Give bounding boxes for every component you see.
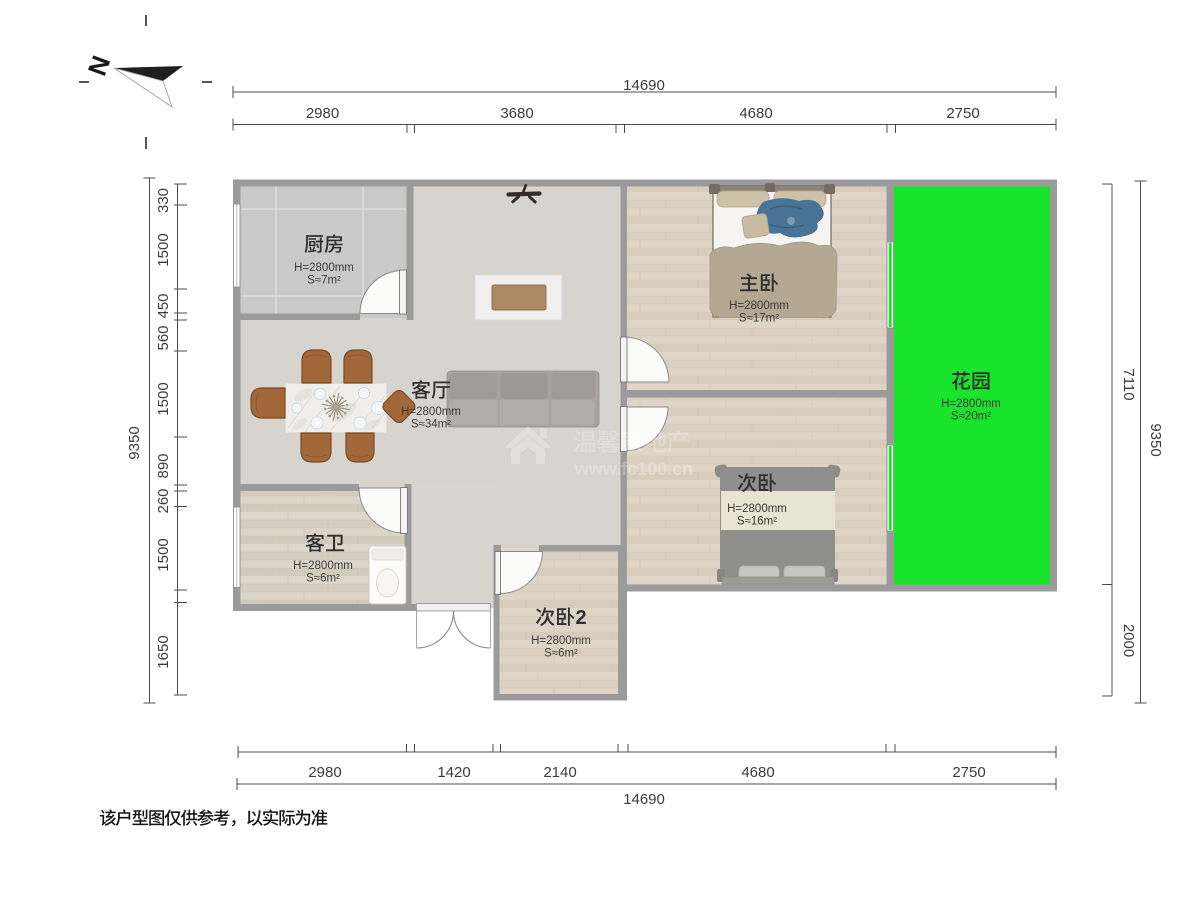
svg-text:2980: 2980 (308, 764, 341, 781)
svg-text:9350: 9350 (126, 426, 143, 459)
svg-text:2140: 2140 (543, 764, 576, 781)
svg-text:S≈7m²: S≈7m² (307, 275, 341, 287)
svg-text:1420: 1420 (437, 764, 470, 781)
svg-text:S≈6m²: S≈6m² (306, 573, 340, 585)
svg-text:S≈6m²: S≈6m² (544, 648, 578, 660)
svg-text:H=2800mm: H=2800mm (729, 300, 789, 312)
svg-text:330: 330 (155, 188, 172, 213)
svg-text:H=2800mm: H=2800mm (727, 503, 787, 515)
svg-text:2: 2 (575, 607, 586, 629)
svg-text:S≈34m²: S≈34m² (411, 419, 451, 431)
svg-text:260: 260 (155, 488, 172, 513)
svg-text:2750: 2750 (946, 105, 979, 122)
svg-text:890: 890 (155, 453, 172, 478)
svg-text:450: 450 (155, 293, 172, 318)
svg-text:14690: 14690 (623, 791, 665, 808)
svg-text:H=2800mm: H=2800mm (294, 262, 354, 274)
svg-text:4680: 4680 (739, 105, 772, 122)
svg-text:1500: 1500 (155, 233, 172, 266)
svg-text:H=2800mm: H=2800mm (531, 635, 591, 647)
svg-text:H=2800mm: H=2800mm (293, 560, 353, 572)
svg-text:4680: 4680 (741, 764, 774, 781)
svg-text:S≈16m²: S≈16m² (737, 516, 777, 528)
svg-text:560: 560 (155, 325, 172, 350)
svg-text:H=2800mm: H=2800mm (941, 398, 1001, 410)
svg-text:2980: 2980 (306, 105, 339, 122)
svg-text:S≈17m²: S≈17m² (739, 313, 779, 325)
svg-text:S≈20m²: S≈20m² (951, 411, 991, 423)
svg-text:14690: 14690 (623, 77, 665, 94)
svg-text:2750: 2750 (952, 764, 985, 781)
svg-text:9350: 9350 (1147, 423, 1164, 456)
svg-text:7110: 7110 (1120, 368, 1137, 400)
svg-text:www.fc100.cn: www.fc100.cn (574, 459, 693, 479)
svg-text:H=2800mm: H=2800mm (401, 406, 461, 418)
svg-text:1500: 1500 (155, 538, 172, 571)
svg-text:2000: 2000 (1120, 624, 1137, 657)
svg-text:3680: 3680 (500, 105, 533, 122)
svg-text:1650: 1650 (155, 635, 172, 668)
svg-text:1500: 1500 (155, 382, 172, 415)
svg-text:N: N (82, 52, 117, 80)
